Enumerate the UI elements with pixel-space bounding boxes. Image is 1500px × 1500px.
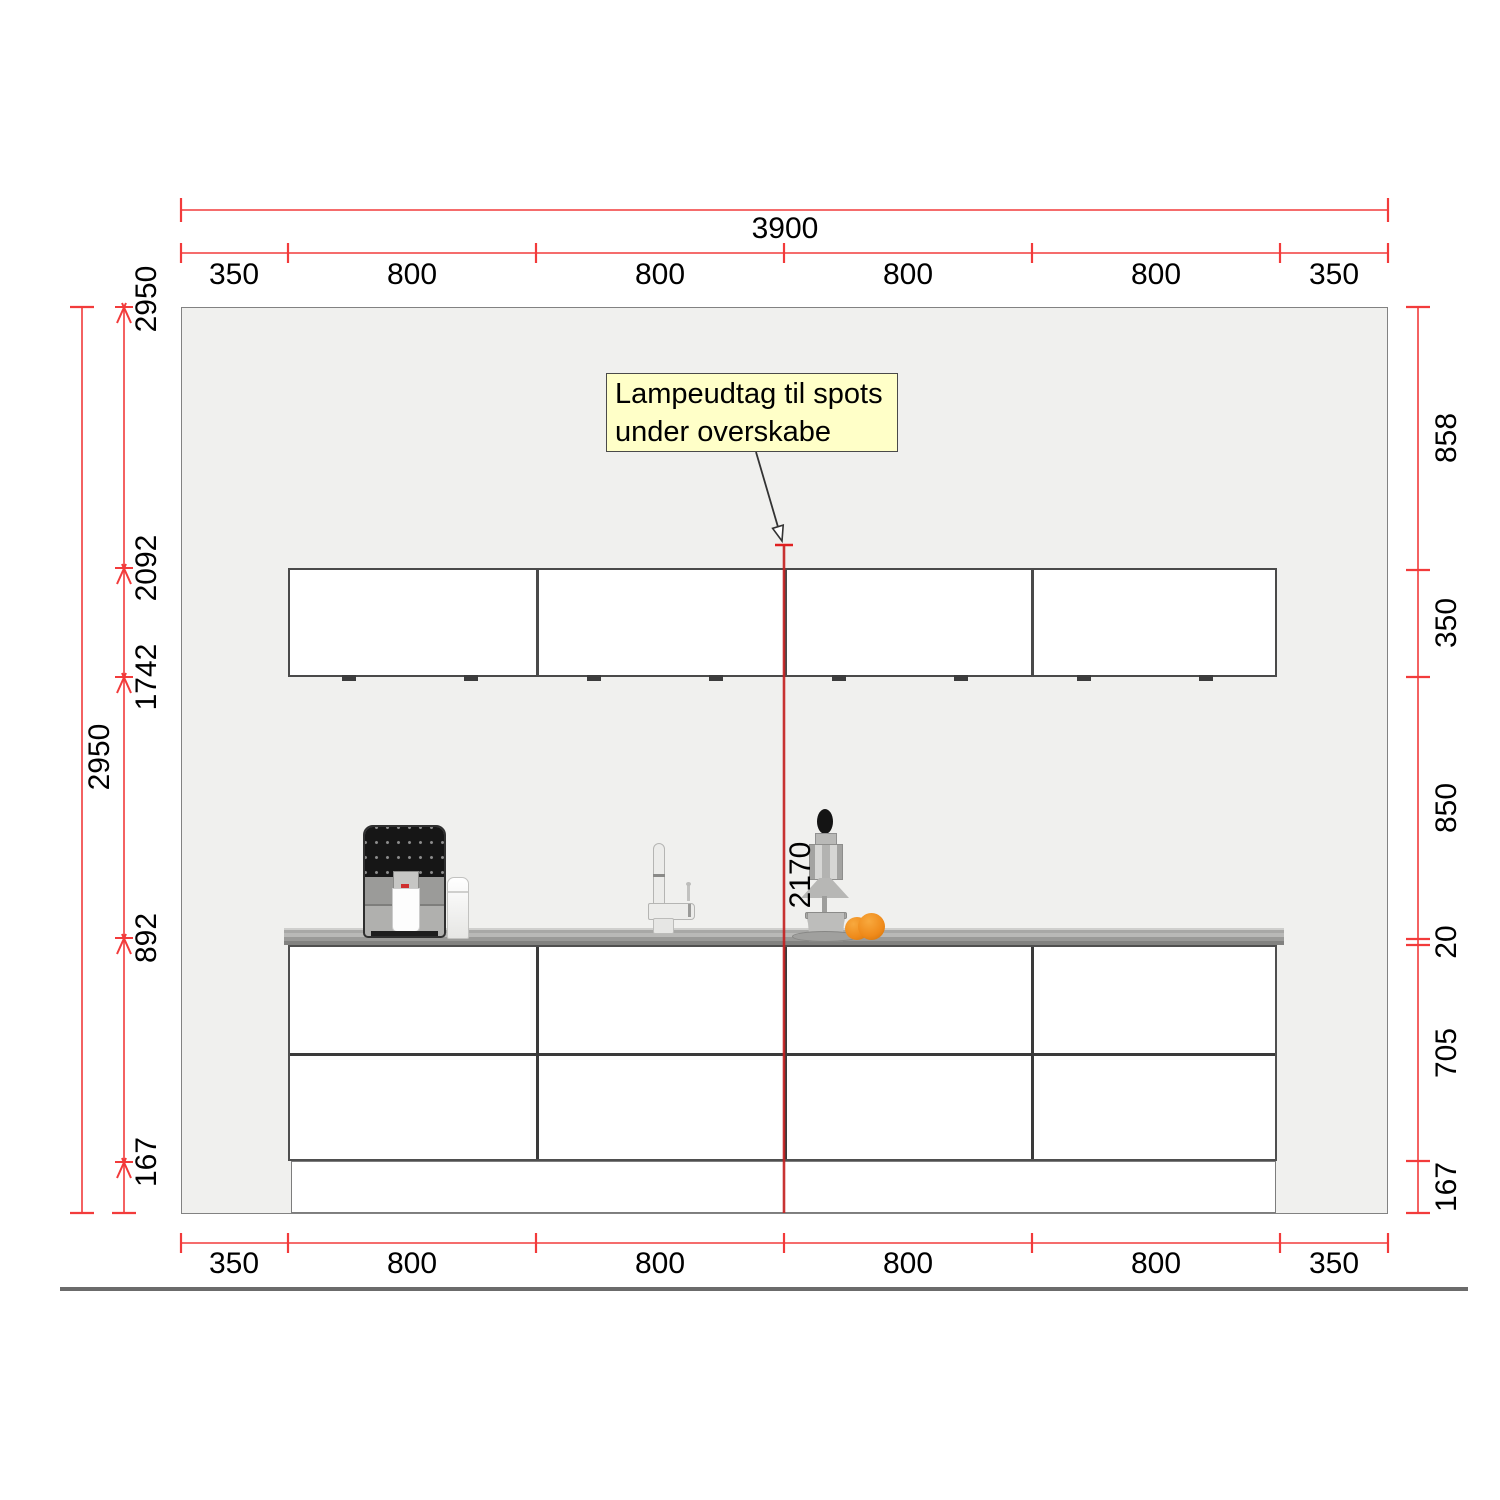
wall-cabinet-divider [1031, 570, 1034, 675]
dim-right-858: 858 [1431, 373, 1463, 503]
dim-top-seg-5: 800 [1096, 258, 1216, 292]
annotation-line1: Lampeudtag til spots [615, 375, 897, 413]
wall-cabinet-divider [536, 570, 539, 675]
base-cabinets [288, 945, 1277, 1161]
faucet [645, 840, 700, 935]
wall-cabinet-divider [784, 570, 787, 675]
dim-top-seg-4: 800 [848, 258, 968, 292]
dim-bottom-seg-3: 800 [600, 1247, 720, 1281]
under-cabinet-spot [342, 675, 356, 681]
wall-cabinets [288, 568, 1277, 677]
annotation-lamp-outlet: Lampeudtag til spots under overskabe [606, 373, 898, 452]
dim-lamp-height: 2170 [785, 810, 817, 940]
orange-fruit [858, 913, 885, 940]
dim-bottom-seg-2: 800 [352, 1247, 472, 1281]
dim-right-167: 167 [1431, 1122, 1463, 1252]
under-cabinet-spot [1077, 675, 1091, 681]
under-cabinet-spot [954, 675, 968, 681]
under-cabinet-spot [587, 675, 601, 681]
dim-right-350: 350 [1431, 558, 1463, 688]
dim-top-seg-2: 800 [352, 258, 472, 292]
dim-left-167: 167 [131, 1097, 163, 1227]
kitchen-elevation-drawing: Lampeudtag til spots under overskabe 390… [0, 0, 1500, 1500]
dim-right-850: 850 [1431, 743, 1463, 873]
dim-top-seg-1: 350 [174, 258, 294, 292]
under-cabinet-spot [464, 675, 478, 681]
dim-top-seg-3: 800 [600, 258, 720, 292]
milk-canister [447, 877, 469, 939]
dim-left-892: 892 [131, 873, 163, 1003]
dim-bottom-seg-5: 800 [1096, 1247, 1216, 1281]
coffee-machine-body [363, 825, 446, 938]
under-cabinet-spot [1199, 675, 1213, 681]
dim-left-1742: 1742 [131, 612, 163, 742]
dim-bottom-seg-4: 800 [848, 1247, 968, 1281]
coffee-machine [363, 825, 446, 938]
dim-top-seg-6: 350 [1274, 258, 1394, 292]
dim-left-2950: 2950 [131, 234, 163, 364]
under-cabinet-spot [832, 675, 846, 681]
dim-bottom-seg-1: 350 [174, 1247, 294, 1281]
annotation-line2: under overskabe [615, 413, 897, 451]
dim-overall-height: 2950 [84, 692, 116, 822]
plinth [291, 1161, 1276, 1213]
drawer-divider [290, 1053, 1275, 1056]
dim-total-width: 3900 [725, 212, 845, 246]
floor-line [60, 1287, 1468, 1291]
under-cabinet-spot [709, 675, 723, 681]
coffee-cup [392, 888, 420, 932]
dim-bottom-seg-6: 350 [1274, 1247, 1394, 1281]
coffee-machine-panel [365, 827, 444, 877]
dim-right-705: 705 [1431, 988, 1463, 1118]
